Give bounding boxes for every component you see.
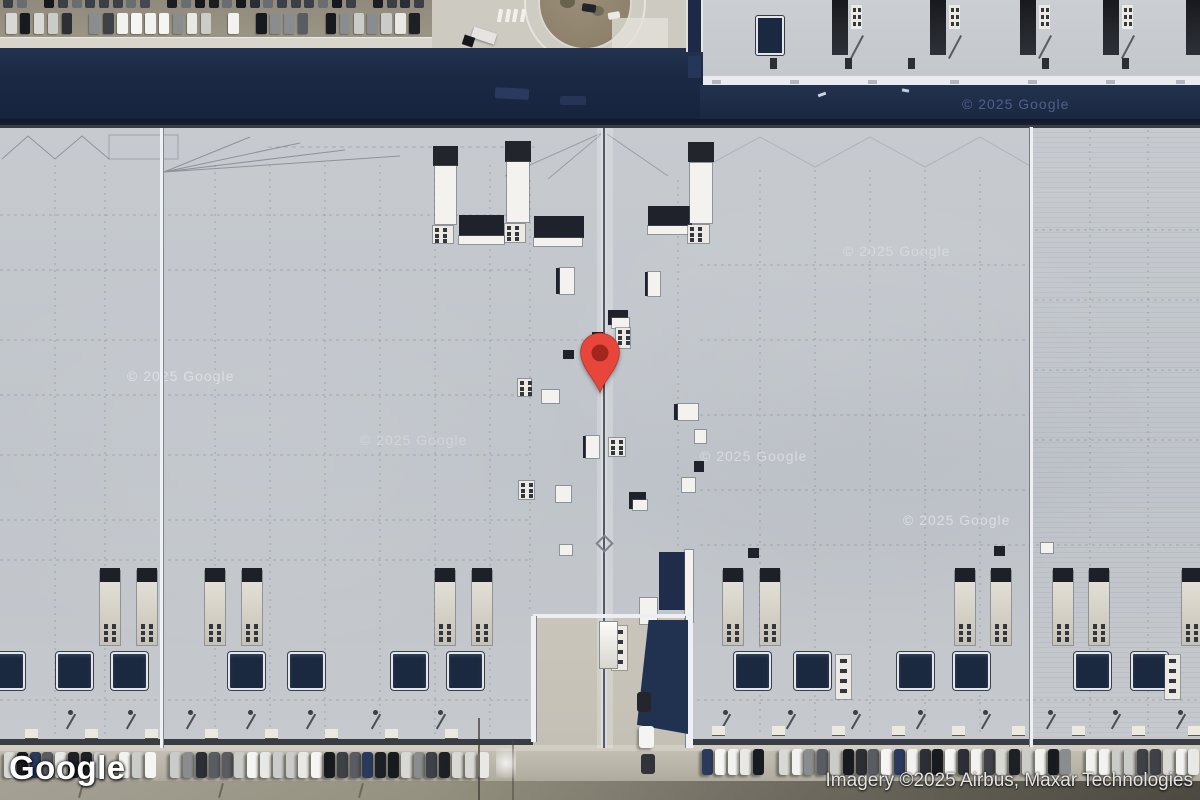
grate-dot	[616, 630, 623, 634]
grate-dot	[141, 624, 146, 629]
pipe-dot	[1113, 710, 1118, 715]
curb-mark	[950, 80, 959, 84]
parked-car	[439, 752, 450, 778]
parked-car	[209, 752, 220, 778]
grate-dot	[1101, 624, 1106, 629]
rooftop-unit	[1041, 543, 1053, 553]
grate-dot	[435, 239, 439, 243]
grate-dot	[149, 624, 154, 629]
wall-top-edge	[533, 614, 690, 618]
grate-dot	[840, 669, 847, 673]
pavement-line	[358, 783, 364, 798]
docked-trailer	[930, 0, 946, 55]
grate-dot	[1041, 8, 1044, 12]
parked-car	[247, 752, 258, 778]
parked-car	[44, 0, 54, 8]
parked-car	[340, 13, 351, 34]
dock-bay-skylight	[897, 652, 934, 690]
grate-dot	[1041, 22, 1044, 26]
grate-dot	[435, 228, 439, 232]
grate-dot	[104, 631, 109, 636]
parked-car	[326, 13, 337, 34]
parked-car	[131, 13, 142, 34]
grate-dot	[520, 387, 524, 391]
grate-dot	[858, 8, 861, 12]
dock-bay-skylight	[391, 652, 428, 690]
rooftop-unit	[560, 268, 574, 294]
grate-dot	[611, 446, 615, 450]
parked-car	[145, 13, 156, 34]
dock-equipment	[1132, 726, 1145, 735]
parked-car	[792, 749, 803, 775]
grate-dot	[1129, 22, 1132, 26]
parked-car	[400, 0, 410, 8]
parked-car	[728, 749, 739, 775]
grate-dot	[1057, 631, 1062, 636]
grate-dot	[529, 489, 533, 493]
parked-car	[367, 13, 378, 34]
roof-downpipe	[981, 714, 991, 730]
grate-dot	[1169, 679, 1176, 683]
roof-downpipe	[916, 714, 926, 730]
grate-dot	[1194, 637, 1199, 642]
grate-dot	[619, 451, 623, 455]
dock-bay-skylight	[447, 652, 484, 690]
grate-dot	[507, 237, 511, 241]
grate-dot	[858, 22, 861, 26]
grate-dot	[209, 637, 214, 642]
grate-dot	[626, 330, 630, 334]
trailer-shadow-cap	[991, 568, 1011, 582]
dock-equipment	[832, 726, 845, 735]
grate-dot	[735, 631, 740, 636]
dock-bay-skylight	[794, 652, 831, 690]
pipe-dot	[1048, 710, 1053, 715]
dock-bay-skylight	[288, 652, 325, 690]
parked-car	[167, 0, 177, 8]
roof-downpipe	[786, 714, 796, 730]
grate-dot	[619, 440, 623, 444]
grate-dot	[520, 392, 524, 396]
grate-dot	[515, 226, 519, 230]
parked-car	[89, 13, 100, 34]
grate-dot	[840, 659, 847, 663]
grate-dot	[141, 631, 146, 636]
grate-dot	[1169, 669, 1176, 673]
rooftop-unit	[560, 545, 572, 555]
parked-car	[298, 752, 309, 778]
parked-car	[103, 13, 114, 34]
grate-dot	[447, 637, 452, 642]
grate-dot	[995, 631, 1000, 636]
parked-car	[85, 0, 95, 8]
parked-car	[140, 0, 150, 8]
trailer-shadow-cap	[1089, 568, 1109, 582]
grate-dot	[484, 637, 489, 642]
parked-car	[381, 13, 392, 34]
parked-car	[350, 752, 361, 778]
grate-dot	[840, 689, 847, 693]
grate-dot	[1169, 689, 1176, 693]
grate-dot	[104, 637, 109, 642]
grate-dot	[1194, 624, 1199, 629]
docked-trailer	[1103, 0, 1119, 55]
grate-dot	[435, 234, 439, 238]
parked-car	[362, 752, 373, 778]
grate-dot	[1186, 624, 1191, 629]
grate-dot	[764, 631, 769, 636]
grate-dot	[104, 624, 109, 629]
parked-car	[346, 0, 356, 8]
roof-downpipe	[1046, 714, 1056, 730]
grate-dot	[217, 637, 222, 642]
grate-dot	[439, 637, 444, 642]
parked-car	[48, 13, 59, 34]
dock-bay-skylight	[1131, 652, 1168, 690]
dock-equipment	[952, 726, 965, 735]
parked-car	[145, 752, 156, 778]
rooftop-unit	[648, 272, 660, 296]
parked-car	[236, 0, 246, 8]
grate-dot	[254, 631, 259, 636]
grate-dot	[1057, 624, 1062, 629]
grate-dot	[484, 624, 489, 629]
parked-car	[715, 749, 726, 775]
grate-dot	[1093, 631, 1098, 636]
google-watermark: © 2025 Google	[700, 448, 807, 464]
grate-dot	[217, 631, 222, 636]
grate-dot	[956, 22, 959, 26]
rooftop-unit	[748, 548, 759, 558]
dock-bay-skylight	[111, 652, 148, 690]
roof-downpipe	[66, 714, 76, 730]
parked-car	[20, 13, 31, 34]
grate-dot	[1003, 637, 1008, 642]
satellite-map[interactable]: © 2025 Google© 2025 Google© 2025 Google©…	[0, 0, 1200, 800]
grate-dot	[1041, 15, 1044, 19]
dock-equipment	[385, 729, 398, 738]
pipe-dot	[918, 710, 923, 715]
pavement-glare	[496, 748, 516, 778]
dock-equipment	[1188, 726, 1200, 735]
dock-equipment	[325, 729, 338, 738]
roof-vent	[1122, 58, 1129, 69]
grate-dot	[246, 631, 251, 636]
grate-dot	[956, 8, 959, 12]
roof-vent	[1042, 58, 1049, 69]
rooftop-unit	[586, 436, 599, 458]
curb-mark	[868, 80, 877, 84]
grate-dot	[246, 637, 251, 642]
road-mark	[902, 88, 909, 92]
curb-mark	[712, 80, 721, 84]
grate-dot	[1003, 631, 1008, 636]
grate-dot	[515, 237, 519, 241]
attribution-text: Imagery ©2025 Airbus, Maxar Technologies	[826, 770, 1193, 792]
roof-downpipe	[306, 714, 316, 730]
rooftop-unit	[682, 478, 695, 492]
roof-seam	[160, 128, 163, 748]
pavement-line	[218, 783, 224, 798]
parked-car	[753, 749, 764, 775]
rooftop-unit	[648, 226, 692, 234]
parked-car	[641, 754, 655, 774]
pipe-dot	[983, 710, 988, 715]
box-truck	[600, 622, 617, 668]
grate-dot	[254, 637, 259, 642]
grate-dot	[959, 624, 964, 629]
building-shadow	[630, 620, 688, 734]
grate-dot	[698, 227, 702, 231]
grate-dot	[840, 679, 847, 683]
grate-dot	[209, 631, 214, 636]
parked-car	[187, 13, 198, 34]
dock-bay-skylight	[56, 652, 93, 690]
road-mark	[688, 56, 701, 78]
grate-dot	[447, 631, 452, 636]
parked-car	[779, 749, 790, 775]
grate-dot	[959, 631, 964, 636]
trailer-shadow-cap	[955, 568, 975, 582]
map-marker-pin[interactable]	[577, 331, 623, 399]
dock-equipment	[205, 729, 218, 738]
grate-dot	[439, 624, 444, 629]
trailer-shadow-cap	[137, 568, 157, 582]
road-mark	[818, 92, 827, 98]
rooftop-unit	[694, 461, 704, 472]
parked-car	[284, 13, 295, 34]
rooftop-unit	[435, 166, 456, 224]
grate-dot	[209, 624, 214, 629]
dock-bay-skylight	[1074, 652, 1111, 690]
grate-dot	[246, 624, 251, 629]
parked-car	[286, 752, 297, 778]
rooftop-unit	[534, 238, 582, 246]
rooftop-unit	[542, 390, 559, 403]
grate-dot	[1065, 624, 1070, 629]
trailer-shadow-cap	[100, 568, 120, 582]
grate-dot	[690, 238, 694, 242]
pipe-dot	[308, 710, 313, 715]
grate-dot	[484, 631, 489, 636]
grate-dot	[727, 631, 732, 636]
docked-trailer	[832, 0, 848, 55]
grate-dot	[698, 233, 702, 237]
vehicle-on-road	[495, 87, 530, 100]
rooftop-unit	[659, 552, 685, 610]
parked-car	[452, 752, 463, 778]
parked-car	[117, 13, 128, 34]
google-watermark: © 2025 Google	[360, 432, 467, 448]
dock-bay-skylight	[953, 652, 990, 690]
grate-dot	[443, 234, 447, 238]
grate-dot	[528, 392, 532, 396]
grate-dot	[1169, 659, 1176, 663]
pipe-dot	[723, 710, 728, 715]
roof-downpipe	[1176, 714, 1186, 730]
grate-dot	[1101, 637, 1106, 642]
grate-dot	[1124, 8, 1127, 12]
grate-dot	[995, 624, 1000, 629]
pipe-dot	[1178, 710, 1183, 715]
grate-dot	[959, 637, 964, 642]
rooftop-unit	[507, 162, 529, 222]
grate-dot	[1129, 15, 1132, 19]
docked-trailer	[1186, 0, 1200, 55]
dock-equipment	[772, 726, 785, 735]
grate-dot	[690, 233, 694, 237]
parked-car	[126, 0, 136, 8]
dock-equipment	[1072, 726, 1085, 735]
pipe-dot	[248, 710, 253, 715]
dock-pipe	[850, 35, 864, 59]
grate-dot	[447, 624, 452, 629]
grate-dot	[443, 239, 447, 243]
parked-car	[804, 749, 815, 775]
trailer-shadow-cap	[760, 568, 780, 582]
roof-downpipe	[436, 714, 446, 730]
parked-car	[34, 13, 45, 34]
grate-dot	[616, 660, 623, 664]
rooftop-unit	[633, 500, 647, 510]
pipe-dot	[68, 710, 73, 715]
grate-dot	[951, 8, 954, 12]
rooftop-unit	[534, 216, 584, 238]
parked-car	[311, 752, 322, 778]
parked-car	[228, 13, 239, 34]
trailer-shadow-cap	[242, 568, 262, 582]
parked-car	[409, 13, 420, 34]
rooftop-unit	[459, 215, 504, 236]
dock-equipment	[1012, 726, 1025, 735]
parked-car	[291, 0, 301, 8]
grate-dot	[611, 451, 615, 455]
google-logo[interactable]: Google	[9, 749, 126, 787]
roof-downpipe	[371, 714, 381, 730]
grate-dot	[1129, 8, 1132, 12]
parked-car	[337, 752, 348, 778]
rooftop-unit	[994, 546, 1005, 556]
parked-car	[209, 0, 219, 8]
dock-equipment	[265, 729, 278, 738]
parked-car	[234, 752, 245, 778]
google-watermark: © 2025 Google	[843, 243, 950, 259]
grate-dot	[529, 483, 533, 487]
parked-car	[414, 0, 424, 8]
parked-car	[99, 0, 109, 8]
grate-dot	[951, 15, 954, 19]
roof-skylight	[756, 16, 784, 55]
grate-dot	[521, 494, 525, 498]
dock-equipment	[445, 729, 458, 738]
grate-dot	[967, 624, 972, 629]
pipe-dot	[438, 710, 443, 715]
dock-bay-skylight	[228, 652, 265, 690]
grate-dot	[1046, 8, 1049, 12]
grate-dot	[1186, 637, 1191, 642]
dock-bay-skylight	[734, 652, 771, 690]
parked-car	[222, 752, 233, 778]
grate-dot	[853, 22, 856, 26]
parked-car	[465, 752, 476, 778]
grate-dot	[1093, 637, 1098, 642]
grate-dot	[439, 631, 444, 636]
rooftop-unit	[690, 163, 712, 223]
docked-trailer	[1020, 0, 1036, 55]
rooftop-unit	[685, 550, 693, 622]
roof-downpipe	[186, 714, 196, 730]
trailer-shadow-cap	[723, 568, 743, 582]
grate-dot	[112, 631, 117, 636]
parked-car	[132, 752, 143, 778]
pipe-dot	[188, 710, 193, 715]
pipe-dot	[373, 710, 378, 715]
dock-bay-skylight	[0, 652, 25, 690]
grate-dot	[507, 232, 511, 236]
grate-dot	[141, 637, 146, 642]
parked-car	[270, 13, 281, 34]
trailer-shadow-cap	[1053, 568, 1073, 582]
rooftop-unit	[612, 318, 629, 328]
grate-dot	[476, 624, 481, 629]
grate-dot	[529, 494, 533, 498]
grate-dot	[858, 15, 861, 19]
grate-dot	[1194, 631, 1199, 636]
roof-vent	[908, 58, 915, 69]
parked-car	[113, 0, 123, 8]
grate-dot	[520, 381, 524, 385]
grate-dot	[1124, 15, 1127, 19]
parked-car	[414, 752, 425, 778]
trailer-shadow-cap	[472, 568, 492, 582]
dock-equipment	[145, 729, 158, 738]
dock-equipment	[712, 726, 725, 735]
dock-equipment	[85, 729, 98, 738]
grate-dot	[772, 637, 777, 642]
parked-car	[298, 13, 309, 34]
curb-mark	[790, 80, 799, 84]
grate-dot	[772, 631, 777, 636]
grate-dot	[995, 637, 1000, 642]
grate-dot	[521, 489, 525, 493]
curb-mark	[1176, 80, 1185, 84]
grate-dot	[698, 238, 702, 242]
grate-dot	[528, 387, 532, 391]
rooftop-unit	[563, 350, 574, 359]
parked-car	[401, 752, 412, 778]
parked-car	[58, 0, 68, 8]
grate-dot	[1057, 637, 1062, 642]
parked-car	[170, 752, 181, 778]
google-watermark: © 2025 Google	[903, 512, 1010, 528]
grate-dot	[476, 637, 481, 642]
grate-dot	[735, 637, 740, 642]
trailer-shadow-cap	[1182, 568, 1200, 582]
rooftop-unit	[556, 486, 571, 502]
roof-downpipe	[246, 714, 256, 730]
roof-seam	[1030, 127, 1033, 747]
parked-car	[324, 752, 335, 778]
grate-dot	[735, 624, 740, 629]
roof-vent	[845, 58, 852, 69]
grate-dot	[967, 637, 972, 642]
parked-car	[201, 13, 212, 34]
grate-dot	[611, 440, 615, 444]
grate-dot	[443, 228, 447, 232]
dock-equipment	[25, 729, 38, 738]
grate-dot	[690, 227, 694, 231]
grate-dot	[626, 336, 630, 340]
